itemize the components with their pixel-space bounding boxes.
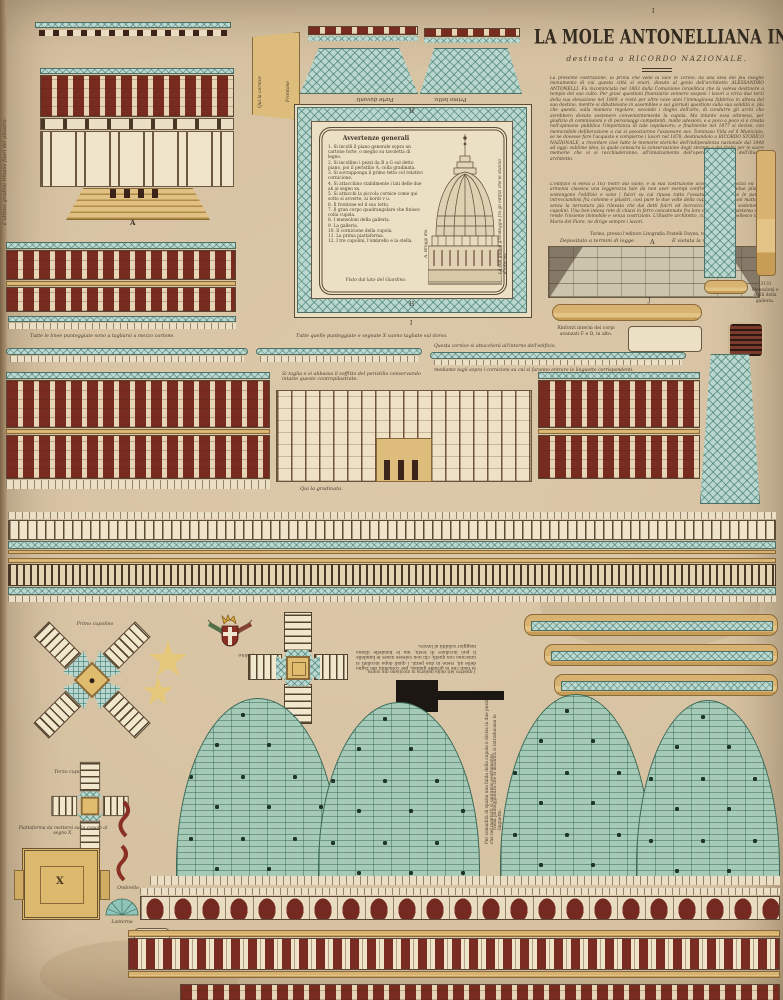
- gore-tab-band: [150, 876, 780, 885]
- gallery-strip-lower: [8, 558, 776, 602]
- facade-base: [6, 480, 270, 489]
- dome-gore-3: [500, 694, 652, 878]
- facade-cornice: [538, 372, 700, 379]
- cornice-teal: [308, 36, 418, 41]
- roof-cornice-strip-2: [424, 28, 520, 44]
- roof-face-right: [420, 48, 522, 94]
- facade-center: [276, 390, 532, 482]
- avvertenze-item: 3. Si sovrapponga il primo tetto col rel…: [328, 171, 424, 181]
- facade-upper-band: [6, 250, 236, 280]
- cornice-strip-row2b: [256, 348, 422, 364]
- caption-parte-davanti: Parte davanti: [340, 96, 410, 102]
- mensoloni-number: 3131: [750, 282, 782, 287]
- strip-colonnade: [8, 520, 776, 540]
- primo-cupolino-piece: [18, 632, 166, 728]
- facade-wing-right: [538, 372, 700, 490]
- peristyle-architrave: [40, 118, 234, 130]
- cornice-dentils: [260, 356, 418, 362]
- arcade-body: [140, 896, 780, 920]
- cornice-dentils: [10, 356, 244, 362]
- cornice-teal: [6, 348, 248, 355]
- platform-x-letter: X: [56, 876, 64, 887]
- cornice-red: [424, 28, 520, 37]
- peristyle-cornice: [40, 68, 234, 74]
- bar-teal-core: [531, 621, 773, 631]
- bar-teal-core: [551, 651, 773, 661]
- cupolino-center-inner: [292, 662, 306, 676]
- page-title: LA MOLE ANTONELLIANA IN TORINO: [534, 25, 780, 48]
- pilaster-column-right-2: [700, 354, 760, 504]
- cornice-strip-row2c: [430, 352, 686, 366]
- strip-tan: [8, 550, 776, 554]
- avvertenze-item: 2. Si incollino i pezzi da B a G sul det…: [328, 161, 424, 171]
- facade-string-course: [6, 429, 270, 434]
- cornice-strip-row2a: [6, 348, 248, 364]
- label-lanterna: Lanterna: [100, 920, 144, 925]
- mensoloni-label: Mensoloni e stalli della galleria.: [748, 288, 782, 304]
- avvertenze-item: 7. Il gran corpo quadrangolare che finis…: [328, 208, 424, 218]
- staircase-doors: [110, 189, 164, 198]
- title-rule: [642, 68, 672, 72]
- strip-bottom-ticks: [8, 596, 776, 602]
- cupolino-center: [81, 797, 99, 815]
- avvertenze-title: Avvertenze generali: [330, 135, 422, 142]
- dome-artist-vertical: A. Broggi dis.: [424, 168, 429, 258]
- facade-center-doors: [384, 460, 424, 480]
- facade-lower-band: [6, 287, 236, 312]
- stone-corner-left: [549, 247, 583, 299]
- facade-string-course: [538, 429, 700, 434]
- cornice-teal: [430, 352, 686, 359]
- marker-h-top: H: [409, 108, 414, 115]
- cornice-teal: [8, 316, 236, 322]
- cut-strip-bottom: [180, 984, 780, 1000]
- strip-teal-edge: [35, 22, 231, 28]
- caption-frontone: Frontone: [286, 52, 291, 102]
- cupolino-arm: [284, 612, 312, 652]
- caption-cornice-attach-1: Questa cornice si attaccherà all'intorno…: [434, 344, 594, 349]
- marker-h-bottom: H: [409, 301, 414, 308]
- arcade-top-band: [140, 888, 780, 895]
- cornice-bar-1: [524, 614, 778, 636]
- caption-soffitto: Si taglia e si abbassa il soffitto del p…: [282, 372, 432, 382]
- punteggiatura-note-vertical: Nella punteggiatura che si incontra si i…: [493, 700, 503, 830]
- cornice-teal: [256, 348, 422, 355]
- dome-gore-2: [318, 702, 480, 878]
- caption-rinforzi: Rinforzi interni dei corpi avanzati F e …: [550, 326, 622, 337]
- entablature-bottom: [128, 971, 780, 978]
- cornice-teal: [424, 38, 520, 43]
- facade-band-1: [6, 380, 270, 428]
- cupolino-center-dot: [88, 677, 95, 684]
- facade-wing-left: [6, 372, 270, 490]
- facade-cornice: [6, 372, 270, 379]
- colonnade-strip-bottom: [128, 930, 780, 980]
- bar-j: [552, 304, 702, 321]
- cupolino-center: [286, 656, 310, 680]
- ombrello-fan: [104, 893, 140, 917]
- strip-top-left: [35, 22, 231, 38]
- paper-model-sheet: L'ultimo gradino rimane fuori del pilast…: [0, 0, 783, 1000]
- caption-gradino-vertical: L'ultimo gradino rimane fuori del pilast…: [2, 105, 8, 225]
- bracket-pieces: [110, 800, 136, 886]
- platform-piece: X: [18, 844, 104, 924]
- tan-strip-right: [756, 150, 776, 276]
- deposit-left: Depositato a termini di legge: [560, 238, 634, 244]
- strip-tan: [8, 558, 776, 563]
- cornice-strip-row1: [8, 316, 236, 330]
- piece-a-letter: A: [130, 218, 135, 227]
- dome-gore-4: [636, 700, 780, 878]
- pilaster-column-right: [704, 148, 736, 278]
- facade-string-course: [6, 281, 236, 286]
- roof-cornice-strip-1: [308, 26, 418, 42]
- quattro-lati-note: I quattro lati della galleria si incolla…: [366, 668, 476, 673]
- mensoloni-bar: [704, 280, 748, 294]
- cornice-bar-3: [554, 674, 778, 696]
- facade-band-1: [538, 380, 700, 428]
- avvertenze-item: 5. Si attacchi la piccola cornice come q…: [328, 192, 424, 202]
- assembly-note: Si badi che la grande gabbia, per comodi…: [356, 612, 476, 670]
- piece-a-peristyle: [40, 68, 234, 218]
- grille-piece: [728, 322, 764, 358]
- cornice-dentils: [434, 360, 682, 365]
- caption-gradinata: Qui la gradinata.: [300, 486, 390, 492]
- caption-primo-tetto: Primo tetto.: [420, 96, 480, 102]
- title-block: I LA MOLE ANTONELLIANA IN TORINO destina…: [534, 14, 780, 240]
- peristyle-attic-panels: [40, 75, 234, 117]
- mole-engraving: [428, 132, 502, 290]
- avvertenze-item: 1. Si incolli il piano generale sopra un…: [328, 145, 424, 161]
- facade-wing-upper: [6, 242, 236, 312]
- facade-band-2: [538, 435, 700, 479]
- avvertenze-footer: Visto dal lato del Giardino.: [328, 278, 424, 283]
- strip-top-ticks: [8, 512, 776, 519]
- caption-cut2: Tutte quelle punteggiate e segnate X van…: [296, 334, 556, 339]
- cupolino-arm: [80, 762, 100, 791]
- cornice-bar-2: [544, 644, 778, 666]
- avvertenze-list: 1. Si incolli il piano generale sopra un…: [328, 145, 424, 244]
- strip-dashes: [39, 30, 227, 36]
- cornice-red: [308, 26, 418, 35]
- strip-colonnade-dark: [8, 564, 776, 586]
- label-piattaforma: Piattaforma da mettersi sulla cupola al …: [18, 826, 108, 837]
- caption-qui-cornice: Qui la cornice: [258, 44, 263, 108]
- roof-face-left: [300, 48, 418, 94]
- cupolino-arm: [51, 796, 77, 816]
- strip-teal: [8, 587, 776, 595]
- marker-i-bottom: I: [410, 320, 412, 327]
- rinforzo-piece: [628, 326, 702, 352]
- bar-teal-core: [561, 681, 773, 691]
- dome-gore-1: [176, 698, 340, 878]
- arcade-strip: [140, 888, 780, 924]
- page-subtitle: destinata a RICORDO NAZIONALE.: [534, 54, 780, 63]
- colonnade-body: [128, 938, 780, 970]
- entablature-top: [128, 930, 780, 937]
- peristyle-columns: [40, 131, 234, 187]
- avvertenze-panel: Avvertenze generali 1. Si incolli il pia…: [319, 127, 507, 295]
- bar-j-letter: J: [648, 297, 650, 304]
- cornice-dentils: [8, 323, 236, 329]
- stone-letter-a: A: [650, 238, 655, 246]
- marker-i-top: I: [652, 8, 654, 15]
- facade-cornice: [6, 242, 236, 249]
- caption-cut1: Tutte le linee punteggiate sono a taglia…: [30, 334, 260, 339]
- label-primo-cupolino: Primo cupolino: [60, 622, 130, 627]
- facade-band-2: [6, 435, 270, 479]
- strip-teal: [8, 541, 776, 549]
- avvertenze-item: 4. Si attacchino stabilmente i lati dell…: [328, 182, 424, 192]
- platform-tab: [14, 870, 24, 900]
- base-plate: Avvertenze generali 1. Si incolli il pia…: [294, 104, 532, 318]
- gallery-strip-upper: [8, 512, 776, 554]
- dome-caption-vertical: La sua guglia grandeggia fra gli edifizi…: [498, 144, 508, 274]
- avvertenze-item: 12. I tre cupolini, l'ombrello e la stel…: [328, 239, 424, 244]
